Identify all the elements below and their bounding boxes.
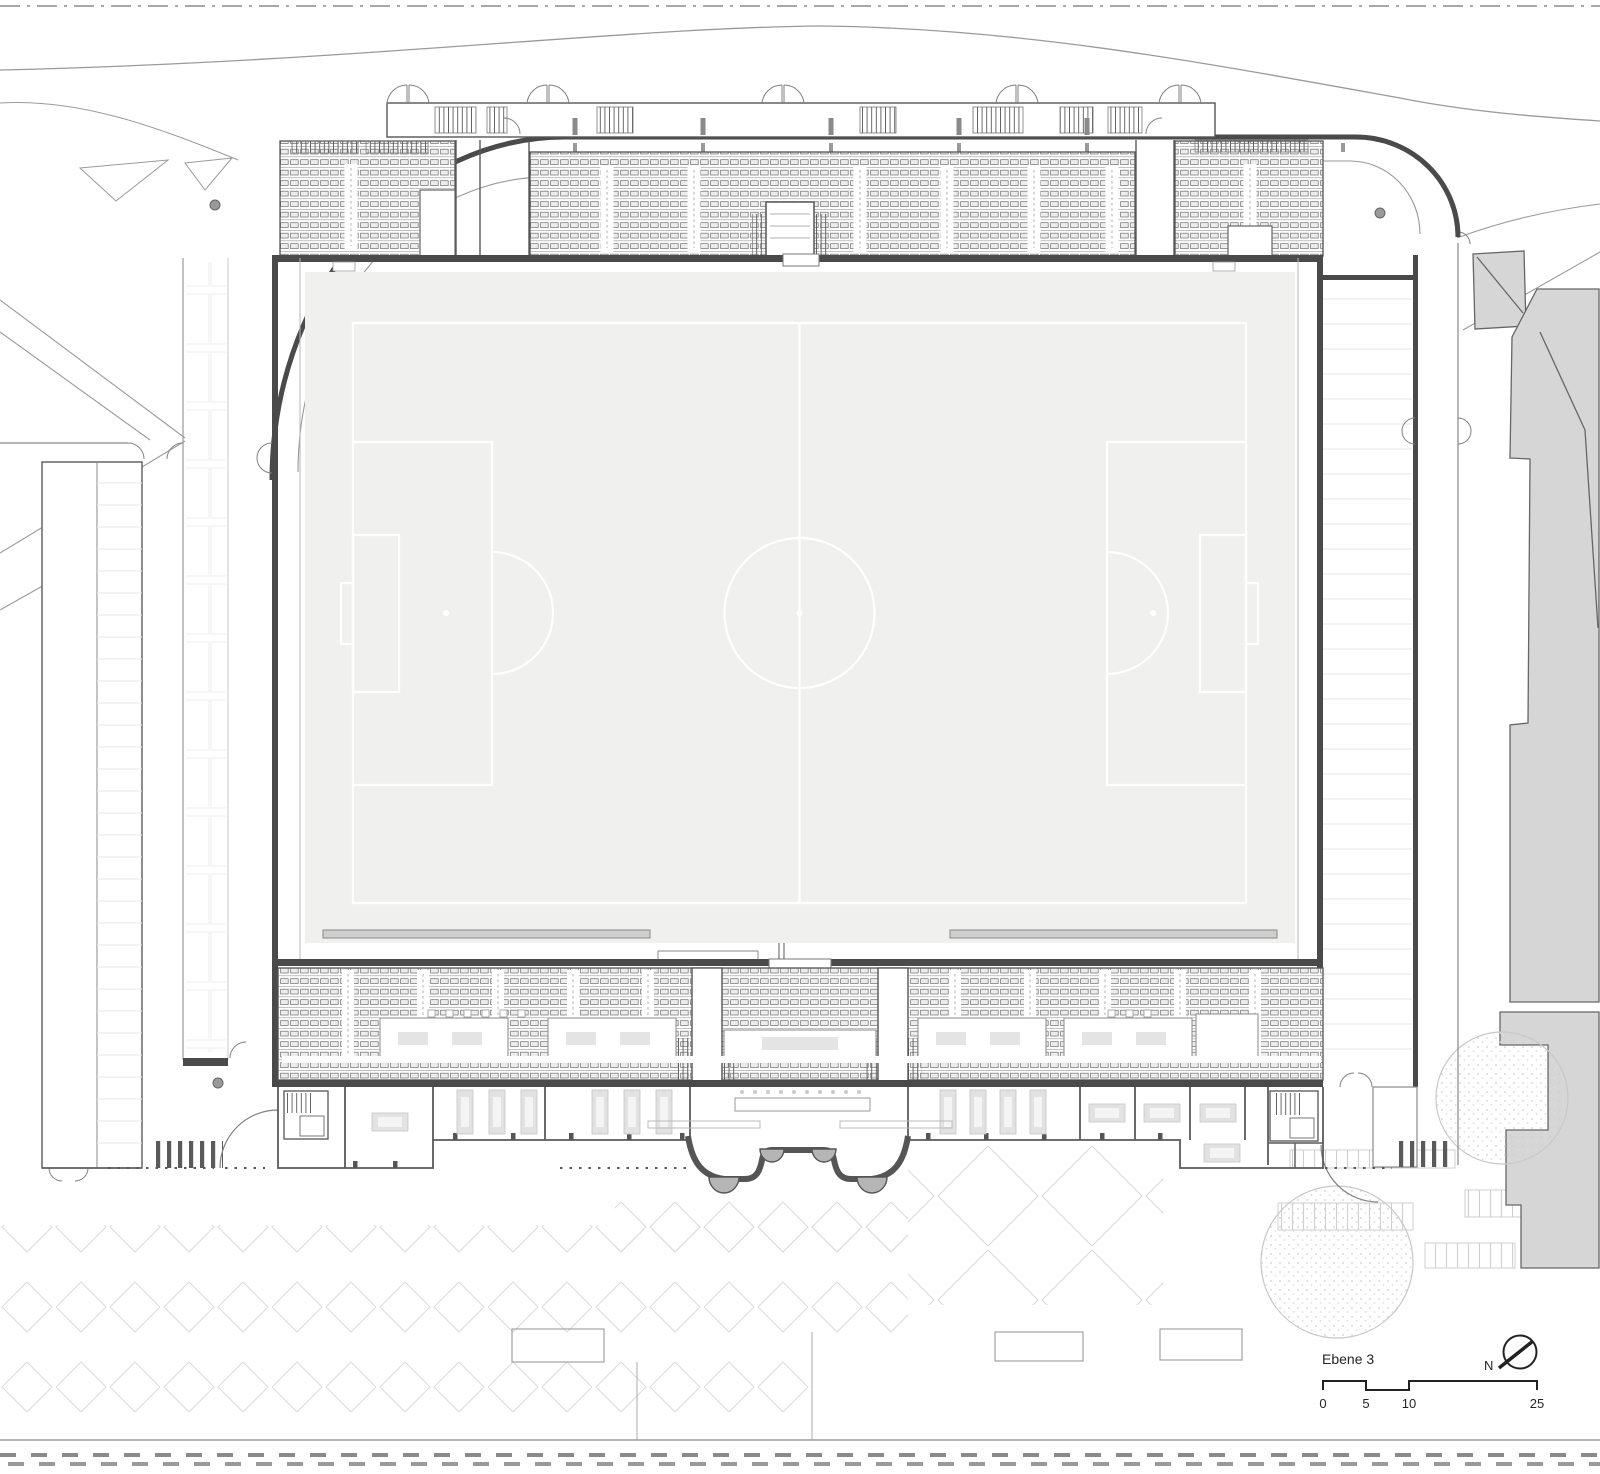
column-dot <box>213 1078 223 1088</box>
vomitory <box>766 202 814 256</box>
tree-icon <box>1436 1032 1568 1164</box>
context-building-large <box>1510 289 1599 1002</box>
bar-counter <box>735 1090 870 1111</box>
stair-core <box>420 190 455 256</box>
column-dot <box>210 200 220 210</box>
pitch-side-rail <box>323 930 650 938</box>
scale-bar <box>1323 1381 1537 1390</box>
gate-door-swing <box>220 1110 278 1168</box>
traffic-island-outline <box>80 158 232 201</box>
south-concourse <box>278 1073 1372 1193</box>
double-door-arc <box>128 443 183 459</box>
entrance-curved-wall <box>688 1136 908 1179</box>
west-building <box>42 443 183 1181</box>
main-entrance <box>648 1121 952 1193</box>
scale-tick-25: 25 <box>1525 1396 1549 1411</box>
tree-icon <box>1261 1186 1413 1338</box>
door-swing-arcs <box>1402 232 1471 444</box>
seating-block <box>530 152 1135 256</box>
level-label: Ebene 3 <box>1322 1351 1374 1367</box>
pitch <box>300 254 1298 960</box>
stand-rear-wall <box>272 1080 1323 1087</box>
door-swing-arcs <box>1340 1073 1372 1087</box>
tunnel-tab <box>783 254 819 266</box>
floor-plan-drawing <box>0 0 1600 1474</box>
circulation-aisle <box>282 1056 1321 1063</box>
scale-tick-0: 0 <box>1311 1396 1335 1411</box>
north-label: N <box>1484 1358 1493 1373</box>
vomitory <box>1228 226 1272 256</box>
south-stand <box>272 959 1323 1087</box>
double-door-arc <box>49 1168 88 1181</box>
column-dot <box>1375 208 1385 218</box>
vomitory <box>692 968 722 1082</box>
crosswalk <box>1394 1141 1452 1167</box>
vomitory <box>878 968 908 1082</box>
pitch-side-rail <box>950 930 1277 938</box>
west-concourse-strip <box>183 258 246 1066</box>
north-arrow-icon <box>1499 1336 1537 1369</box>
context-building-outline <box>1160 1329 1242 1360</box>
context-building-outline <box>995 1332 1083 1361</box>
floor-plan-canvas: Ebene 3 N 0 5 10 25 <box>0 0 1600 1474</box>
east-concourse-strip <box>1322 232 1471 1167</box>
scale-tick-10: 10 <box>1397 1396 1421 1411</box>
scale-tick-5: 5 <box>1354 1396 1378 1411</box>
crosswalk <box>150 1141 223 1168</box>
